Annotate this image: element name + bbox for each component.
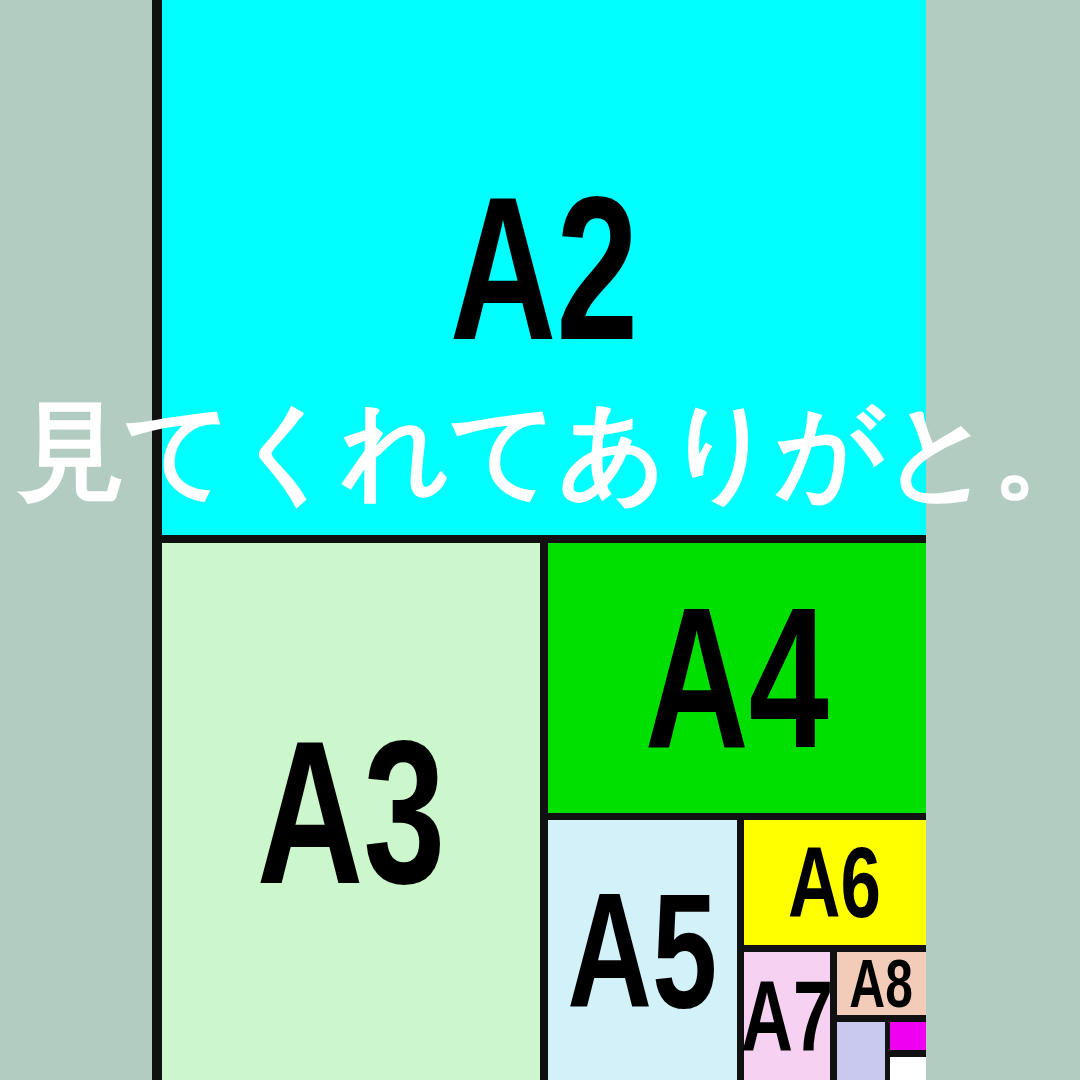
- divider-a7-a8: [830, 952, 837, 1080]
- paper-a8-label: A8: [850, 949, 914, 1018]
- paper-a2-label: A2: [450, 165, 639, 370]
- paper-a4-label: A4: [645, 578, 829, 778]
- divider-a2-a3: [162, 535, 926, 543]
- caption-text: 見てくれてありがと。: [18, 390, 1078, 513]
- paper-a6: A6: [744, 820, 926, 945]
- diagram-left-border: [152, 0, 162, 1080]
- paper-a7: A7: [744, 952, 830, 1080]
- paper-a7-label: A7: [741, 966, 833, 1066]
- paper-a11: [890, 1057, 926, 1080]
- divider-a4-a5: [548, 813, 926, 820]
- paper-a3-label: A3: [257, 709, 446, 914]
- divider-a10-a11: [890, 1050, 926, 1057]
- paper-a5: A5: [548, 820, 737, 1080]
- paper-a10: [890, 1022, 926, 1050]
- divider-a3-a4: [540, 543, 548, 1080]
- paper-a8: A8: [837, 952, 926, 1015]
- paper-a3: A3: [162, 543, 540, 1080]
- divider-a8-a9: [837, 1015, 926, 1022]
- paper-a9: [837, 1022, 885, 1080]
- paper-size-diagram: A2 A3 A4 A5 A6 A7 A8: [152, 0, 926, 1080]
- paper-a5-label: A5: [567, 869, 717, 1032]
- paper-a6-label: A6: [789, 832, 882, 933]
- paper-a4: A4: [548, 543, 926, 813]
